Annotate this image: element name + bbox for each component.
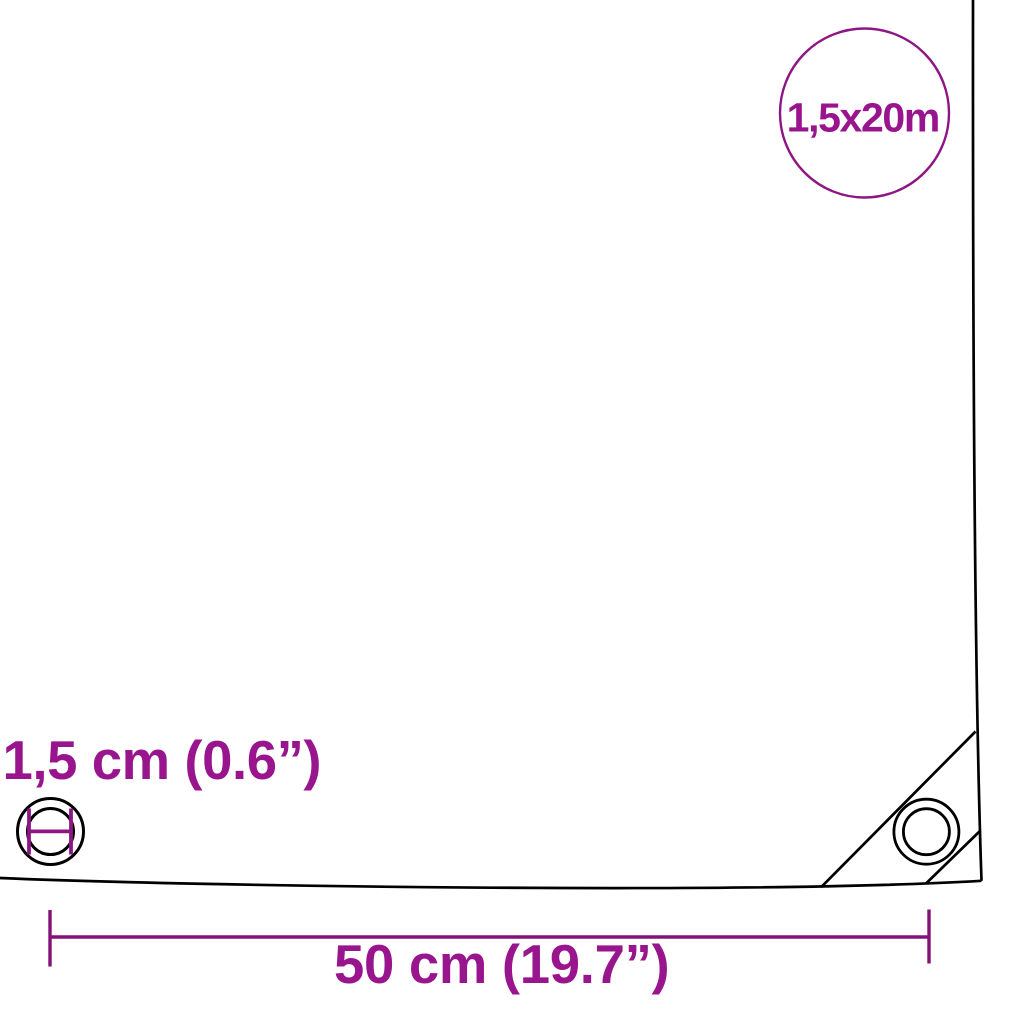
svg-text:1,5 cm (0.6”): 1,5 cm (0.6”) <box>3 730 322 791</box>
svg-text:1,5x20m: 1,5x20m <box>787 94 939 140</box>
svg-text:50 cm (19.7”): 50 cm (19.7”) <box>334 934 669 995</box>
